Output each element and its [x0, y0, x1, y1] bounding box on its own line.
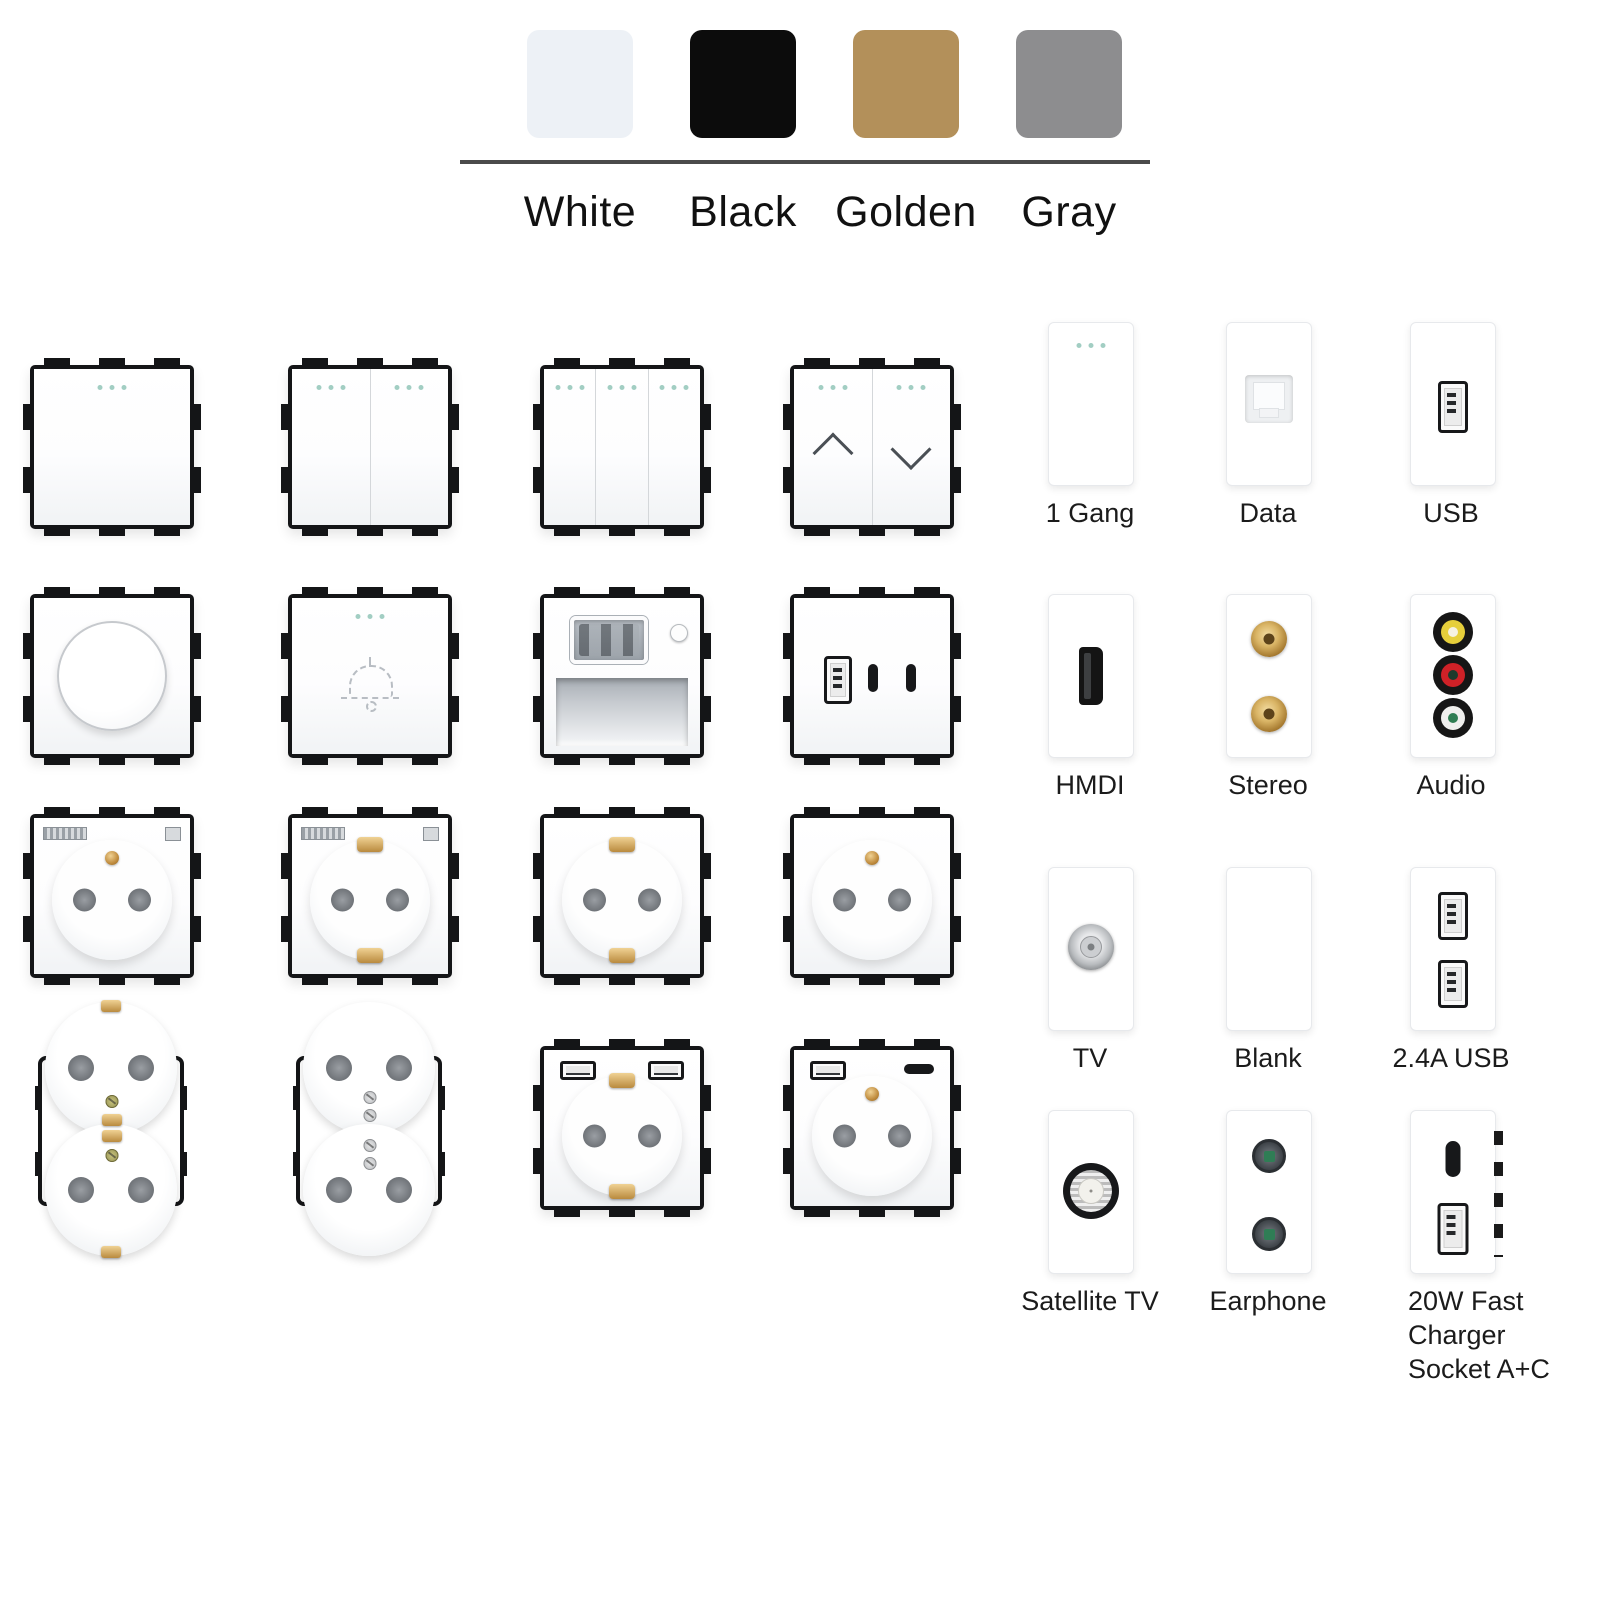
dimmer-knob [57, 621, 167, 731]
schuko-socket-with-terminal [288, 814, 452, 978]
terminal-chip-icon [423, 827, 439, 841]
module-label: Audio [1366, 770, 1536, 801]
usb-c-port-icon [906, 664, 916, 692]
module-stereo [1226, 594, 1312, 758]
double-french-socket [288, 995, 452, 1265]
indicator-dots-icon [356, 614, 385, 619]
up-arrow-icon [812, 433, 853, 474]
socket-face [794, 1050, 950, 1206]
usb-a2c-charger-socket [790, 594, 954, 758]
switch-1gang [30, 365, 194, 529]
module-label: Data [1183, 498, 1353, 529]
module-label: Earphone [1183, 1286, 1353, 1317]
doorbell-face [292, 598, 448, 754]
audio-jack-white-icon [1433, 698, 1473, 738]
module-label: TV [1005, 1043, 1175, 1074]
module-label: HMDI [1005, 770, 1175, 801]
module-label: USB [1366, 498, 1536, 529]
gang [648, 369, 700, 525]
gang [292, 369, 370, 525]
gang-down [872, 369, 951, 525]
doorbell-switch [288, 594, 452, 758]
gang-up [794, 369, 872, 525]
indicator-dots-icon [316, 385, 345, 390]
audio-jack-yellow-icon [1433, 612, 1473, 652]
schuko-socket [540, 814, 704, 978]
switch-face [292, 369, 448, 525]
indicator-dots-icon [818, 385, 847, 390]
charger-label-line2: Socket A+C [1408, 1352, 1600, 1386]
color-swatch-black[interactable] [690, 30, 796, 138]
color-swatch-golden[interactable] [853, 30, 959, 138]
product-catalog-sheet: White Black Golden Gray [0, 0, 1600, 1600]
color-label-golden: Golden [816, 188, 996, 237]
module-blank [1226, 867, 1312, 1031]
light-recess [556, 678, 688, 746]
earth-pin-icon [865, 1087, 879, 1101]
coax-connector-icon [1068, 924, 1114, 970]
usb-a-port-icon [824, 656, 852, 704]
socket-hole [326, 1055, 352, 1081]
french-socket-well [812, 1076, 932, 1196]
earth-clip-icon [101, 1000, 121, 1012]
module-data [1226, 322, 1312, 486]
usb-c-port-icon [904, 1064, 934, 1074]
indicator-dots-icon [897, 385, 926, 390]
module-label: Stereo [1183, 770, 1353, 801]
dimmer-face [34, 598, 190, 754]
switch-face [34, 369, 190, 525]
switch-face [794, 369, 950, 525]
earth-clip-icon [609, 1184, 635, 1199]
indicator-dots-icon [1077, 343, 1106, 348]
earth-clip-icon [357, 837, 383, 852]
socket-hole [583, 1125, 606, 1148]
rca-jack-icon [1251, 621, 1287, 657]
terminal-chip-icon [165, 827, 181, 841]
module-audio [1410, 594, 1496, 758]
socket-face [292, 818, 448, 974]
screw-icon [106, 1149, 119, 1162]
socket-hole [386, 1177, 412, 1203]
earth-clip-icon [609, 1073, 635, 1088]
f-connector-icon [1063, 1163, 1119, 1219]
socket-hole [68, 1055, 94, 1081]
schuko-usb-socket [540, 1046, 704, 1210]
sensor-button [670, 624, 688, 642]
color-label-gray: Gray [979, 188, 1159, 237]
usb-a-port-icon [1438, 1203, 1469, 1255]
terminal-strip-icon [301, 827, 345, 840]
socket-hole [888, 889, 911, 912]
usb-socket-face [794, 598, 950, 754]
socket-hole [128, 889, 151, 912]
earth-clip-icon [609, 837, 635, 852]
usb-c-port-icon [868, 664, 878, 692]
indicator-dots-icon [98, 385, 127, 390]
module-tv [1048, 867, 1134, 1031]
rca-jack-icon [1251, 696, 1287, 732]
terminal-strip-icon [43, 827, 87, 840]
screw-icon [364, 1139, 377, 1152]
down-arrow-icon [891, 429, 932, 470]
color-label-white: White [490, 188, 670, 237]
usb-a-port-icon [560, 1061, 596, 1080]
dimmer-switch [30, 594, 194, 758]
switch-face [544, 369, 700, 525]
earth-pin-icon [105, 851, 119, 865]
earphone-jack-icon [1252, 1217, 1286, 1251]
indicator-dots-icon [395, 385, 424, 390]
earth-clip-icon [101, 1246, 121, 1258]
usb-a-port-icon [1438, 892, 1468, 940]
french-socket-well [52, 840, 172, 960]
french-socket [790, 814, 954, 978]
usb-a-port-icon [810, 1061, 846, 1080]
module-satellite-tv [1048, 1110, 1134, 1274]
divider-line [460, 160, 1150, 164]
module-1gang [1048, 322, 1134, 486]
charger-label-line1: 20W Fast Charger [1408, 1284, 1600, 1352]
rj45-jack-icon [1245, 375, 1293, 423]
socket-hole [331, 889, 354, 912]
socket-face [544, 818, 700, 974]
usb-a-port-icon [1438, 960, 1468, 1008]
screw-icon [364, 1109, 377, 1122]
gang [292, 598, 448, 754]
color-swatch-gray[interactable] [1016, 30, 1122, 138]
module-usb [1410, 322, 1496, 486]
socket-hole [386, 889, 409, 912]
indicator-dots-icon [660, 385, 689, 390]
socket-hole [386, 1055, 412, 1081]
socket-hole [128, 1055, 154, 1081]
socket-face [794, 818, 950, 974]
schuko-socket-well [562, 1076, 682, 1196]
indicator-dots-icon [607, 385, 636, 390]
screw-icon [364, 1091, 377, 1104]
module-label: 2.4A USB [1366, 1043, 1536, 1074]
audio-jack-red-icon [1433, 655, 1473, 695]
schuko-socket-well [562, 840, 682, 960]
socket-hole [833, 1125, 856, 1148]
double-schuko-socket [30, 995, 194, 1265]
usb-c-port-icon [1446, 1141, 1461, 1177]
module-24a-usb [1410, 867, 1496, 1031]
socket-hole [638, 889, 661, 912]
schuko-socket-well [45, 1124, 177, 1256]
french-usb-socket [790, 1046, 954, 1210]
switch-3gang [540, 365, 704, 529]
socket-hole [73, 889, 96, 912]
earth-pin-icon [865, 851, 879, 865]
schuko-socket-well [310, 840, 430, 960]
gang [544, 369, 595, 525]
stair-light-sensor [540, 594, 704, 758]
socket-hole [326, 1177, 352, 1203]
socket-hole [638, 1125, 661, 1148]
socket-face [34, 818, 190, 974]
earth-clip-icon [357, 948, 383, 963]
earphone-jack-icon [1252, 1139, 1286, 1173]
french-socket-well [812, 840, 932, 960]
usb-a-port-icon [648, 1061, 684, 1080]
earth-clip-icon [102, 1114, 122, 1126]
bell-icon [341, 657, 399, 713]
module-20w-fast-charger [1410, 1110, 1496, 1274]
motion-sensor-window-icon [570, 616, 648, 664]
socket-hole [583, 889, 606, 912]
color-label-black: Black [653, 188, 833, 237]
screw-icon [364, 1157, 377, 1170]
socket-hole [68, 1177, 94, 1203]
socket-hole [128, 1177, 154, 1203]
indicator-dots-icon [555, 385, 584, 390]
stair-light-face [544, 598, 700, 754]
color-swatch-white[interactable] [527, 30, 633, 138]
earth-clip-icon [609, 948, 635, 963]
screw-icon [106, 1095, 119, 1108]
module-label: 20W Fast Charger Socket A+C [1408, 1284, 1600, 1386]
socket-hole [888, 1125, 911, 1148]
socket-hole [833, 889, 856, 912]
gang [370, 369, 449, 525]
earth-clip-icon [102, 1130, 122, 1142]
hdmi-port-icon [1079, 647, 1103, 705]
gang [595, 369, 647, 525]
usb-a-port-icon [1438, 381, 1468, 433]
module-hdmi [1048, 594, 1134, 758]
french-socket-with-terminal [30, 814, 194, 978]
curtain-switch [790, 365, 954, 529]
module-label: Blank [1183, 1043, 1353, 1074]
switch-2gang [288, 365, 452, 529]
socket-face [544, 1050, 700, 1206]
gang [34, 369, 190, 525]
module-label: Satellite TV [1005, 1286, 1175, 1317]
module-earphone [1226, 1110, 1312, 1274]
module-label: 1 Gang [1005, 498, 1175, 529]
